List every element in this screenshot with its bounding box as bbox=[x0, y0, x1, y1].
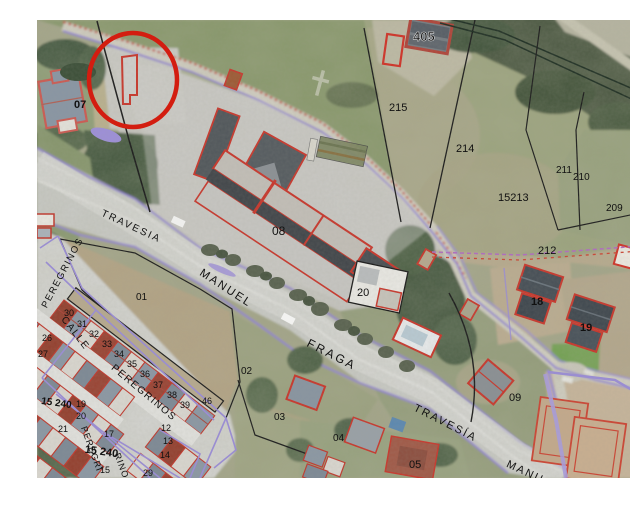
svg-text:04: 04 bbox=[333, 433, 345, 444]
svg-text:15213: 15213 bbox=[498, 192, 529, 204]
svg-text:07: 07 bbox=[74, 99, 86, 111]
svg-text:29: 29 bbox=[143, 468, 153, 478]
svg-text:08: 08 bbox=[272, 224, 286, 238]
svg-text:30: 30 bbox=[64, 308, 74, 318]
svg-text:31: 31 bbox=[77, 319, 87, 329]
svg-text:212: 212 bbox=[538, 245, 556, 257]
svg-text:46: 46 bbox=[202, 396, 212, 406]
svg-text:27: 27 bbox=[38, 349, 48, 359]
svg-text:38: 38 bbox=[167, 390, 177, 400]
svg-text:18: 18 bbox=[531, 296, 543, 308]
svg-text:13: 13 bbox=[163, 436, 173, 446]
svg-text:214: 214 bbox=[456, 143, 474, 155]
svg-text:19: 19 bbox=[580, 322, 592, 334]
svg-text:215: 215 bbox=[389, 102, 407, 114]
svg-text:209: 209 bbox=[606, 203, 623, 214]
svg-text:20: 20 bbox=[357, 287, 369, 299]
svg-text:15: 15 bbox=[100, 465, 110, 475]
svg-text:17: 17 bbox=[104, 429, 114, 439]
svg-text:14: 14 bbox=[160, 450, 170, 460]
svg-text:02: 02 bbox=[241, 366, 253, 377]
svg-text:12: 12 bbox=[161, 423, 171, 433]
svg-text:32: 32 bbox=[89, 329, 99, 339]
svg-text:37: 37 bbox=[153, 380, 163, 390]
svg-text:210: 210 bbox=[573, 172, 590, 183]
svg-text:20: 20 bbox=[76, 411, 86, 421]
svg-text:34: 34 bbox=[114, 349, 124, 359]
svg-text:35: 35 bbox=[127, 359, 137, 369]
svg-text:36: 36 bbox=[140, 369, 150, 379]
svg-text:09: 09 bbox=[509, 392, 521, 404]
svg-text:19: 19 bbox=[76, 399, 86, 409]
svg-text:01: 01 bbox=[136, 292, 148, 303]
svg-text:21: 21 bbox=[58, 424, 68, 434]
svg-text:05: 05 bbox=[409, 459, 421, 471]
svg-text:26: 26 bbox=[42, 333, 52, 343]
svg-text:405: 405 bbox=[413, 29, 435, 44]
svg-text:33: 33 bbox=[102, 339, 112, 349]
svg-text:03: 03 bbox=[274, 412, 286, 423]
svg-text:39: 39 bbox=[180, 400, 190, 410]
svg-text:211: 211 bbox=[556, 165, 572, 176]
